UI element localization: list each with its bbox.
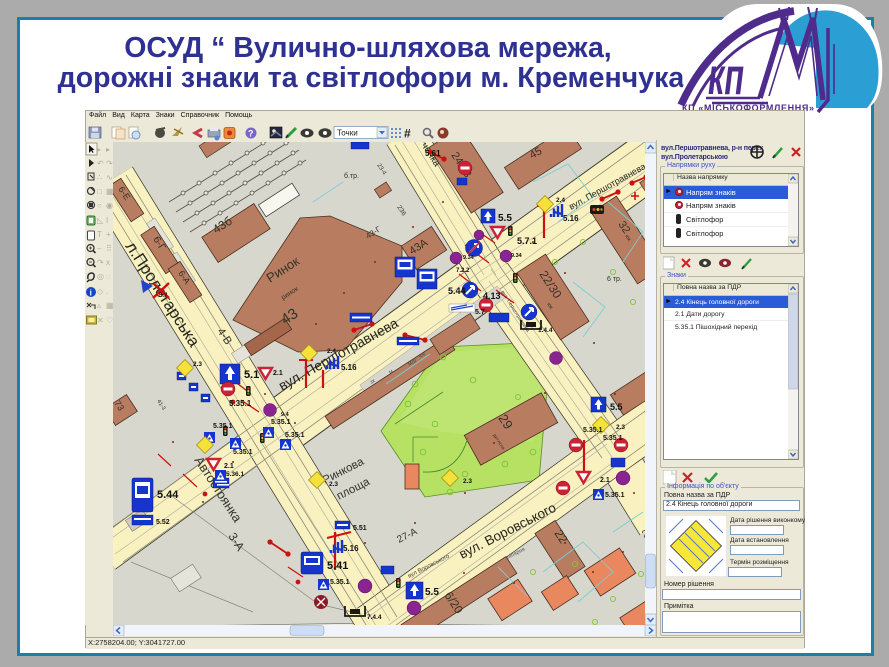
svg-text:2.1: 2.1 <box>224 463 234 470</box>
svg-text:x: x <box>106 258 110 267</box>
svg-text:5.7: 5.7 <box>159 293 168 299</box>
svg-text:▸: ▸ <box>106 145 110 154</box>
svg-text:◌: ◌ <box>106 272 111 281</box>
svg-text:▸: ▸ <box>97 145 101 154</box>
svg-text:6 тр.: 6 тр. <box>607 276 622 283</box>
svg-text:б.тр.: б.тр. <box>344 172 359 180</box>
svg-text:–: – <box>97 244 102 253</box>
svg-text:∴: ∴ <box>97 173 102 182</box>
svg-text:I: I <box>106 216 108 225</box>
svg-text:⠿: ⠿ <box>106 244 112 253</box>
svg-text:5.35.1: 5.35.1 <box>330 579 350 586</box>
svg-text:2.3: 2.3 <box>616 424 625 431</box>
svg-text:◺: ◺ <box>97 216 104 225</box>
svg-text:✕: ✕ <box>97 316 104 325</box>
svg-text:5.35.1: 5.35.1 <box>229 399 252 408</box>
svg-text:T: T <box>97 230 102 239</box>
svg-text:◇: ◇ <box>97 287 104 296</box>
svg-text:5.52: 5.52 <box>156 519 170 526</box>
svg-text:♡: ♡ <box>106 316 113 325</box>
svg-text:▦: ▦ <box>106 301 113 310</box>
svg-text:+: + <box>106 230 111 239</box>
svg-text:5.5: 5.5 <box>610 402 623 412</box>
svg-text:9.34: 9.34 <box>463 255 475 261</box>
svg-text:2.1: 2.1 <box>273 370 283 377</box>
svg-text:5.35.1: 5.35.1 <box>285 432 305 439</box>
svg-text:5.35.1: 5.35.1 <box>583 427 603 434</box>
svg-text:5.35.1: 5.35.1 <box>233 449 253 456</box>
svg-text:2.3: 2.3 <box>329 481 338 488</box>
svg-text:2.1: 2.1 <box>600 477 610 484</box>
svg-text:?: ? <box>248 129 254 139</box>
svg-text:5.16: 5.16 <box>563 214 579 223</box>
svg-text:5.5: 5.5 <box>425 587 439 598</box>
svg-text:2.3: 2.3 <box>463 478 472 485</box>
svg-text:5.7.1: 5.7.1 <box>517 236 537 246</box>
svg-text:i: i <box>90 289 92 298</box>
svg-text:7.4.4: 7.4.4 <box>367 614 382 621</box>
svg-text:5.61: 5.61 <box>425 149 441 158</box>
svg-text:2.4: 2.4 <box>327 348 336 355</box>
svg-text:◉: ◉ <box>106 201 113 210</box>
svg-text:□: □ <box>97 187 102 196</box>
svg-text:9.4: 9.4 <box>281 412 290 418</box>
svg-text:7.2.2: 7.2.2 <box>456 268 470 274</box>
svg-text:Точки: Точки <box>337 129 358 138</box>
svg-text:5.41: 5.41 <box>327 560 348 572</box>
svg-text:#: # <box>404 127 411 141</box>
svg-text:5.7: 5.7 <box>475 309 485 316</box>
svg-text:5.35.1: 5.35.1 <box>605 492 625 499</box>
svg-text:5.1: 5.1 <box>244 369 259 381</box>
svg-text:○: ○ <box>97 201 102 210</box>
svg-text:5.36.1: 5.36.1 <box>226 471 244 478</box>
svg-text:2.4: 2.4 <box>556 197 565 204</box>
svg-text:.: . <box>106 287 108 296</box>
svg-text:5.44: 5.44 <box>157 489 179 501</box>
svg-text:5.16: 5.16 <box>341 363 357 372</box>
svg-text:▵: ▵ <box>97 301 101 310</box>
svg-text:9.34: 9.34 <box>511 253 523 259</box>
svg-text:5.35.1: 5.35.1 <box>603 435 623 442</box>
svg-text:5.44: 5.44 <box>448 286 466 296</box>
svg-text:↷: ↷ <box>106 159 113 168</box>
svg-text:◎: ◎ <box>97 272 104 281</box>
svg-text:↶: ↶ <box>97 159 104 168</box>
svg-text:▦: ▦ <box>106 187 113 196</box>
svg-text:5.5: 5.5 <box>498 213 512 224</box>
svg-text:5.16: 5.16 <box>343 544 359 553</box>
svg-text:5.51: 5.51 <box>353 525 367 532</box>
svg-text:5.35.1: 5.35.1 <box>213 423 233 430</box>
svg-text:4.13: 4.13 <box>483 291 501 301</box>
svg-text:5.35.1: 5.35.1 <box>271 419 291 426</box>
svg-text:2.3: 2.3 <box>193 361 202 368</box>
svg-text:↷: ↷ <box>97 258 104 267</box>
svg-text:1.4.4: 1.4.4 <box>538 327 553 334</box>
svg-text:∿: ∿ <box>106 173 113 182</box>
